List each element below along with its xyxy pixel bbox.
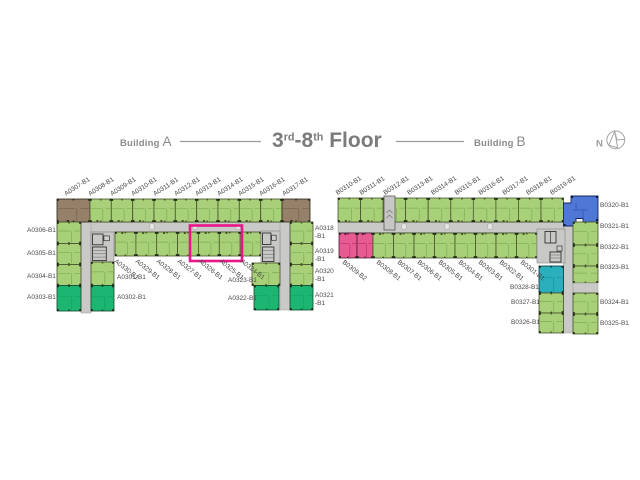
svg-text:A0306-B1: A0306-B1 (27, 227, 56, 234)
svg-text:A0303-B1: A0303-B1 (27, 294, 56, 301)
svg-text:A0301-B1: A0301-B1 (117, 274, 146, 281)
svg-text:B0323-B1: B0323-B1 (600, 264, 629, 271)
svg-text:-B1: -B1 (315, 300, 326, 307)
svg-text:A0320: A0320 (315, 268, 334, 275)
svg-text:B0322-B1: B0322-B1 (600, 244, 629, 251)
svg-text:-B1: -B1 (315, 233, 326, 240)
svg-text:-B1: -B1 (315, 276, 326, 283)
svg-text:A0319: A0319 (315, 248, 334, 255)
svg-text:A0302-B1: A0302-B1 (117, 294, 146, 301)
svg-text:-B1: -B1 (315, 256, 326, 263)
svg-text:A0304-B1: A0304-B1 (27, 273, 56, 280)
svg-text:B0324-B1: B0324-B1 (600, 299, 629, 306)
svg-text:A0305-B1: A0305-B1 (27, 250, 56, 257)
svg-text:A0321: A0321 (315, 292, 334, 299)
svg-text:N: N (596, 139, 603, 150)
svg-text:A0318: A0318 (315, 225, 334, 232)
svg-text:B0328-B1: B0328-B1 (510, 284, 539, 291)
svg-text:B0325-B1: B0325-B1 (600, 320, 629, 327)
svg-text:B0320-B1: B0320-B1 (600, 202, 629, 209)
svg-text:B0326-B1: B0326-B1 (511, 319, 540, 326)
svg-text:A0322-B1: A0322-B1 (228, 295, 257, 302)
svg-text:B0321-B1: B0321-B1 (600, 223, 629, 230)
svg-text:B0327-B1: B0327-B1 (511, 299, 540, 306)
svg-text:A0323-B1: A0323-B1 (228, 277, 257, 284)
